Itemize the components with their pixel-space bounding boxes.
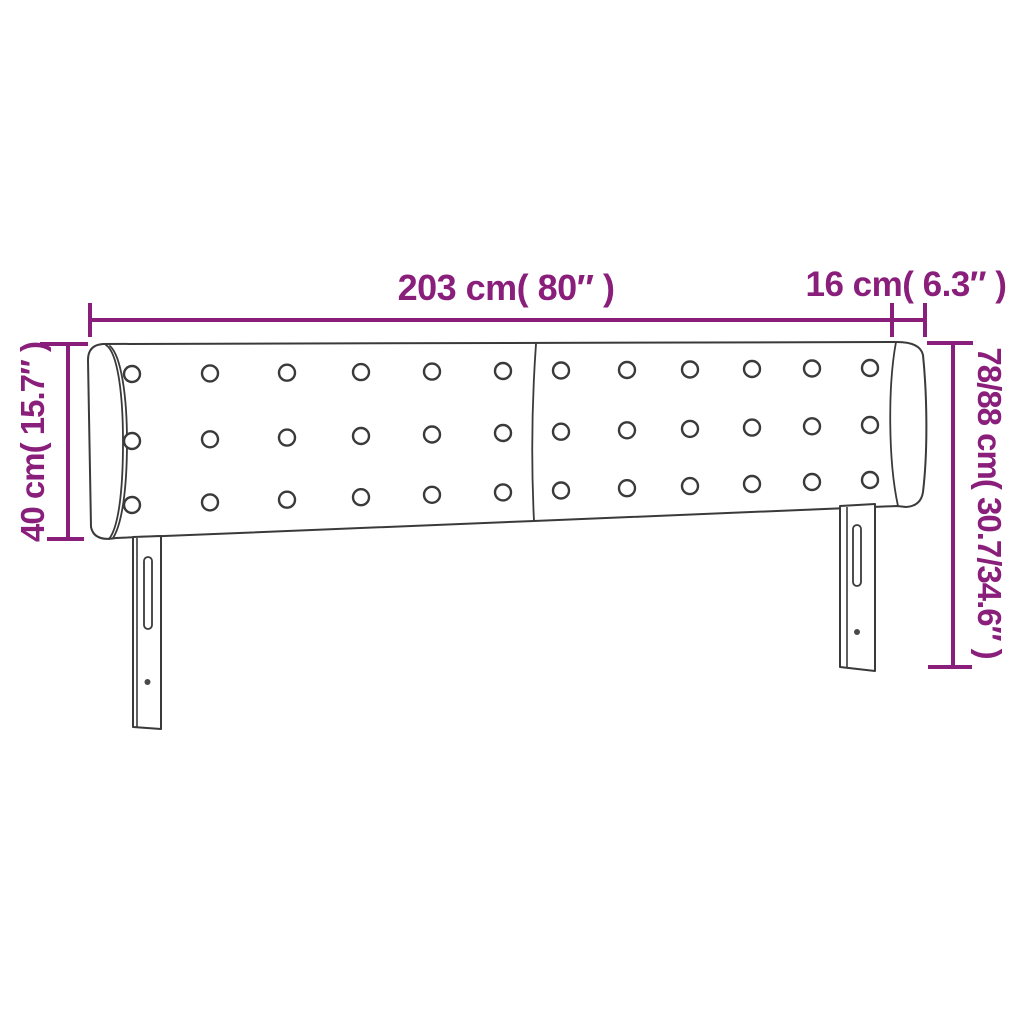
left-leg-slot — [144, 557, 152, 629]
right-leg-slot — [853, 525, 861, 586]
label-headboard-height: 40 cm( 15.7″ ) — [14, 342, 51, 542]
diagram-canvas: 203 cm( 80″ ) 16 cm( 6.3″ ) 40 cm( 15.7″… — [0, 0, 1024, 1024]
headboard-drawing — [88, 342, 926, 729]
label-wing-depth: 16 cm( 6.3″ ) — [806, 265, 1007, 304]
label-total-height: 78/88 cm( 30.7/34.6″ ) — [971, 347, 1008, 658]
left-leg-screw-hole — [145, 679, 151, 685]
left-leg — [133, 536, 161, 729]
right-leg-screw-hole — [854, 629, 860, 635]
dimension-total-width — [90, 303, 925, 337]
dimension-total-height — [927, 343, 973, 667]
headboard-dimension-diagram: 203 cm( 80″ ) 16 cm( 6.3″ ) 40 cm( 15.7″… — [0, 0, 1024, 1024]
right-leg — [840, 504, 875, 671]
label-total-width: 203 cm( 80″ ) — [398, 267, 615, 308]
